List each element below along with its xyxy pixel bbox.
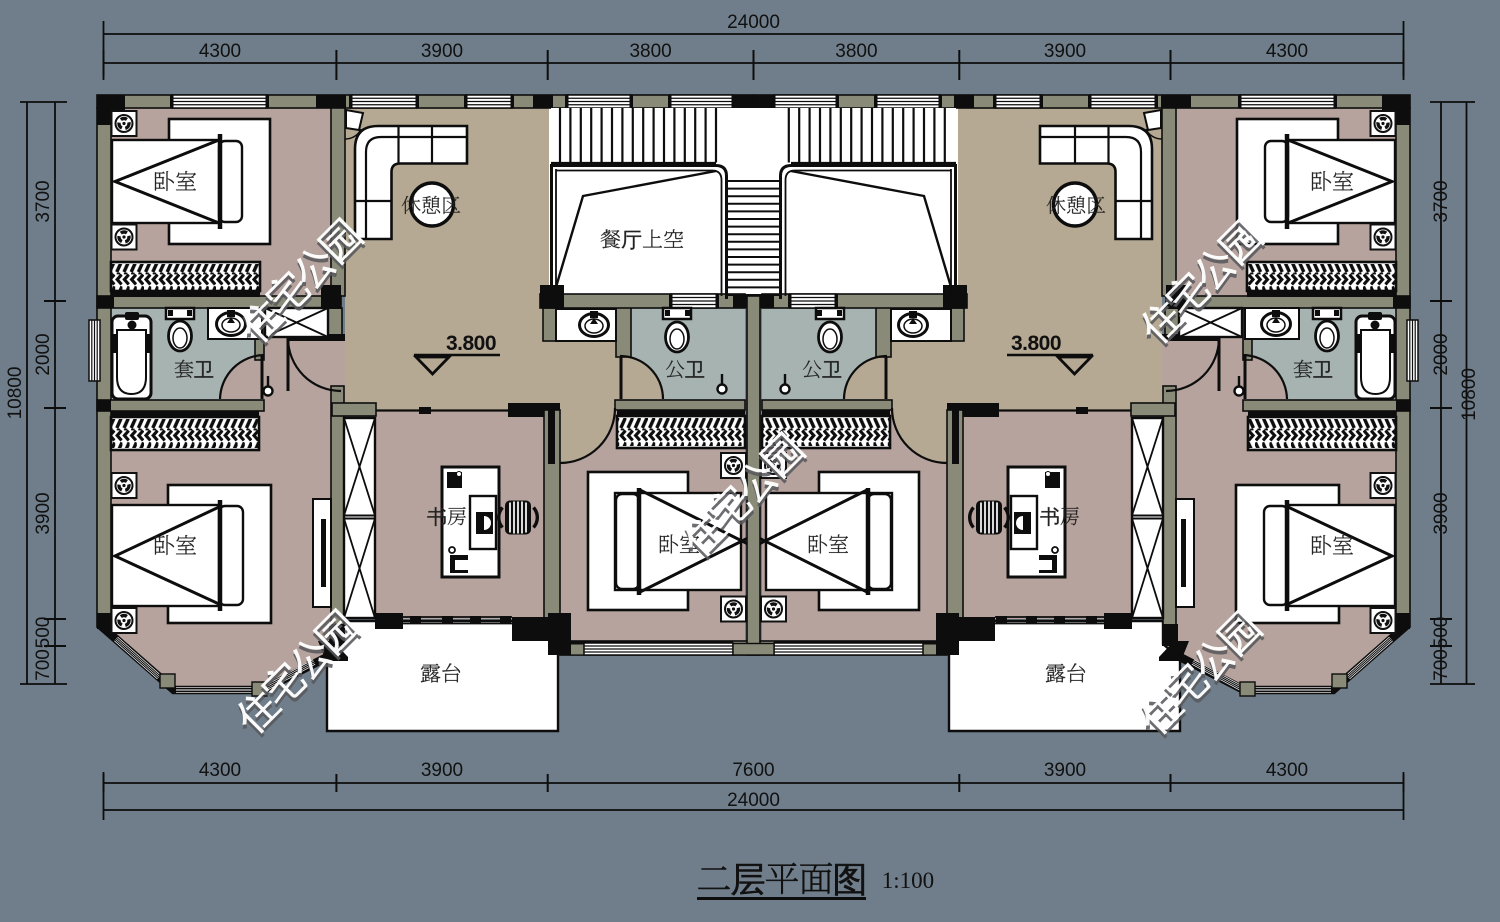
svg-text:10800: 10800 (5, 367, 26, 420)
svg-text:3900: 3900 (421, 41, 463, 62)
svg-text:3.800: 3.800 (446, 332, 496, 355)
svg-text:500: 500 (1431, 617, 1452, 649)
svg-text:3700: 3700 (1431, 180, 1452, 222)
svg-text:4300: 4300 (199, 41, 241, 62)
svg-text:3800: 3800 (629, 41, 671, 62)
svg-text:4300: 4300 (199, 760, 241, 781)
svg-text:3900: 3900 (33, 492, 54, 534)
svg-text:7600: 7600 (732, 760, 774, 781)
svg-text:3900: 3900 (1044, 41, 1086, 62)
svg-text:24000: 24000 (727, 790, 780, 811)
svg-text:700: 700 (1431, 649, 1452, 681)
svg-text:2000: 2000 (1431, 333, 1452, 375)
svg-text:3.800: 3.800 (1011, 332, 1061, 355)
svg-text:3900: 3900 (1044, 760, 1086, 781)
svg-text:4300: 4300 (1266, 760, 1308, 781)
svg-text:1:100: 1:100 (882, 868, 934, 893)
svg-text:3900: 3900 (1431, 492, 1452, 534)
svg-text:24000: 24000 (727, 12, 780, 33)
svg-text:2000: 2000 (33, 333, 54, 375)
svg-text:4300: 4300 (1266, 41, 1308, 62)
svg-text:3800: 3800 (835, 41, 877, 62)
svg-text:3900: 3900 (421, 760, 463, 781)
svg-text:3700: 3700 (33, 180, 54, 222)
svg-text:10800: 10800 (1459, 368, 1480, 421)
svg-text:500: 500 (33, 617, 54, 649)
svg-text:700: 700 (33, 649, 54, 681)
